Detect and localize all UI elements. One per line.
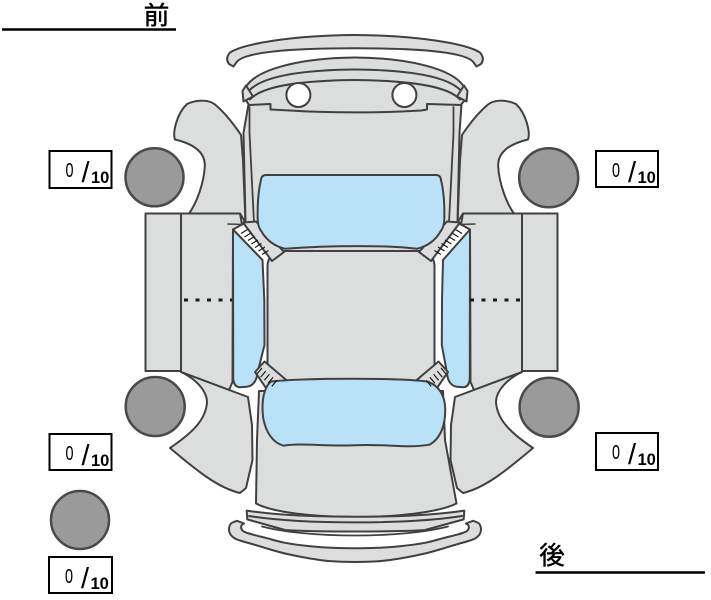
svg-text:/: / bbox=[81, 563, 90, 595]
svg-text:10: 10 bbox=[91, 575, 109, 593]
svg-text:0: 0 bbox=[612, 442, 620, 464]
svg-text:0: 0 bbox=[66, 443, 74, 465]
svg-text:/: / bbox=[82, 157, 91, 189]
svg-text:/: / bbox=[628, 439, 637, 471]
svg-text:0: 0 bbox=[66, 160, 74, 182]
svg-text:0: 0 bbox=[612, 160, 620, 182]
svg-text:/: / bbox=[82, 440, 91, 472]
svg-text:10: 10 bbox=[638, 451, 656, 469]
svg-text:10: 10 bbox=[91, 169, 109, 187]
svg-text:0: 0 bbox=[65, 566, 73, 588]
svg-text:/: / bbox=[628, 157, 637, 189]
svg-text:10: 10 bbox=[638, 169, 656, 187]
svg-text:10: 10 bbox=[91, 452, 109, 470]
